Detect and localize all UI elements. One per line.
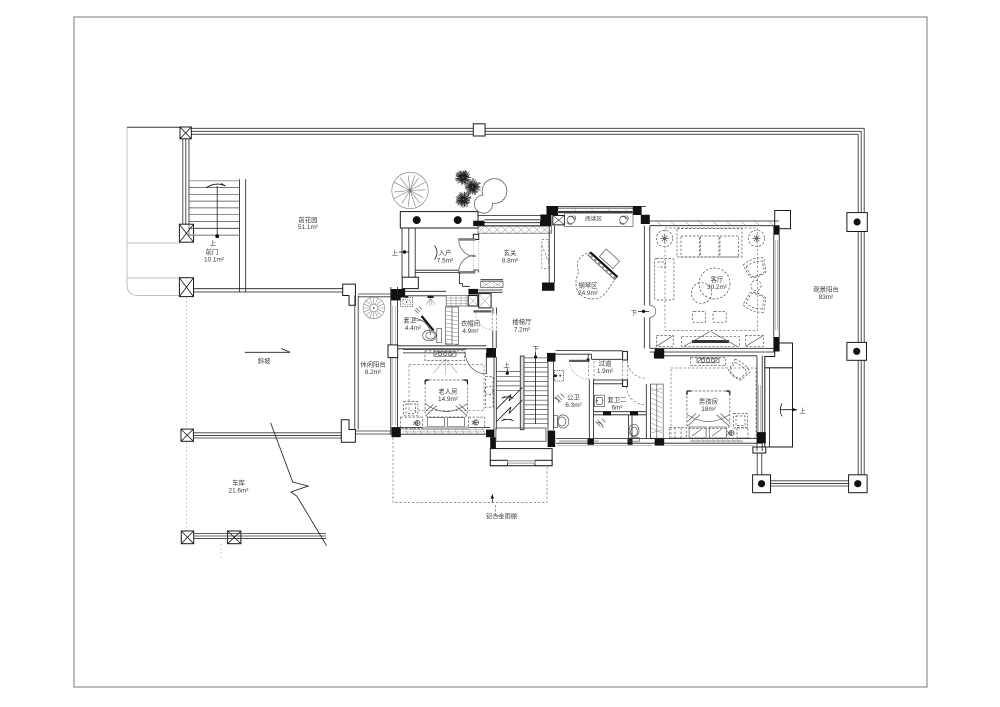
svg-text:6m²: 6m²	[611, 405, 622, 412]
svg-text:前花园: 前花园	[298, 215, 317, 224]
svg-text:公卫: 公卫	[567, 394, 580, 402]
svg-text:过道: 过道	[599, 359, 612, 368]
svg-text:套卫一: 套卫一	[403, 316, 423, 325]
svg-text:30.2m²: 30.2m²	[707, 284, 727, 291]
svg-text:套卫二: 套卫二	[607, 395, 627, 404]
svg-text:7.2m²: 7.2m²	[514, 327, 530, 334]
svg-text:钢琴区: 钢琴区	[578, 282, 598, 290]
svg-text:前门: 前门	[206, 247, 219, 256]
svg-text:8.2m²: 8.2m²	[365, 369, 381, 376]
svg-text:客厅: 客厅	[711, 275, 724, 284]
svg-text:21.6m²: 21.6m²	[229, 488, 249, 495]
svg-text:8.8m²: 8.8m²	[502, 257, 518, 264]
svg-text:上: 上	[392, 248, 399, 257]
svg-text:衣帽间: 衣帽间	[461, 319, 480, 328]
svg-text:男孩房: 男孩房	[699, 397, 718, 406]
svg-text:楼梯厅: 楼梯厅	[512, 317, 532, 326]
svg-text:下: 下	[532, 345, 539, 353]
svg-text:老人房: 老人房	[438, 387, 457, 396]
svg-text:铝合金雨棚: 铝合金雨棚	[486, 513, 517, 521]
svg-text:休闲阳台: 休闲阳台	[360, 360, 386, 369]
svg-text:24.9m²: 24.9m²	[578, 290, 598, 297]
svg-text:4.4m²: 4.4m²	[405, 325, 421, 332]
svg-text:6.3m²: 6.3m²	[565, 402, 581, 409]
svg-text:阅读区: 阅读区	[585, 215, 602, 223]
svg-text:上: 上	[799, 406, 806, 415]
svg-text:上: 上	[210, 239, 217, 248]
svg-text:51.1m²: 51.1m²	[298, 224, 318, 231]
svg-text:7.5m²: 7.5m²	[437, 257, 453, 264]
svg-text:斜坡: 斜坡	[258, 356, 271, 365]
svg-text:下: 下	[631, 309, 638, 317]
svg-text:玄关: 玄关	[504, 248, 517, 257]
svg-text:车库: 车库	[232, 478, 245, 487]
svg-text:83m²: 83m²	[819, 294, 834, 301]
svg-text:上: 上	[503, 361, 510, 370]
svg-text:观景阳台: 观景阳台	[813, 285, 839, 294]
svg-text:4.9m²: 4.9m²	[462, 328, 478, 335]
svg-text:18m²: 18m²	[701, 406, 716, 413]
svg-text:10.1m²: 10.1m²	[204, 257, 224, 264]
svg-text:入户: 入户	[439, 248, 452, 257]
svg-text:1.9m²: 1.9m²	[597, 368, 613, 375]
svg-text:14.9m²: 14.9m²	[438, 396, 458, 403]
